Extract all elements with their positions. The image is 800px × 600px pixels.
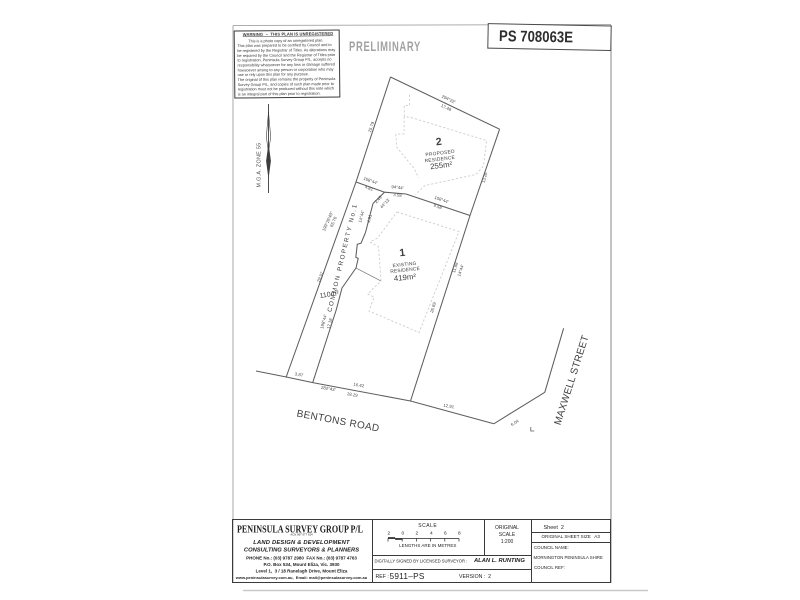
- svg-text:BENTONS ROAD: BENTONS ROAD: [296, 408, 381, 434]
- svg-text:14°44': 14°44': [357, 210, 365, 223]
- svg-text:17.48: 17.48: [440, 103, 452, 112]
- svg-text:PRELIMINARY: PRELIMINARY: [349, 38, 421, 54]
- svg-text:M.G.A. ZONE 55: M.G.A. ZONE 55: [257, 143, 263, 188]
- svg-text:4.81: 4.81: [364, 184, 374, 192]
- svg-text:12.91: 12.91: [443, 403, 455, 410]
- svg-text:13.26: 13.26: [481, 171, 489, 183]
- svg-text:4.81: 4.81: [366, 213, 373, 223]
- svg-text:1: 1: [399, 247, 406, 260]
- svg-text:282°43': 282°43': [321, 385, 336, 392]
- svg-text:26.69: 26.69: [429, 301, 437, 313]
- svg-text:18.29: 18.29: [346, 391, 358, 398]
- svg-text:94°44': 94°44': [391, 184, 404, 190]
- svg-text:419m²: 419m²: [393, 272, 416, 283]
- svg-text:110m²: 110m²: [319, 290, 340, 300]
- svg-text:16.42: 16.42: [353, 382, 365, 389]
- svg-text:PS 708063E: PS 708063E: [499, 28, 573, 46]
- svg-text:3.87: 3.87: [294, 371, 304, 377]
- svg-text:6.04: 6.04: [510, 418, 520, 427]
- svg-text:3.58: 3.58: [393, 192, 403, 198]
- svg-text:9.58: 9.58: [433, 203, 443, 211]
- svg-text:2: 2: [435, 136, 442, 149]
- svg-text:MAXWELL STREET: MAXWELL STREET: [553, 334, 592, 426]
- svg-text:255m²: 255m²: [430, 160, 453, 172]
